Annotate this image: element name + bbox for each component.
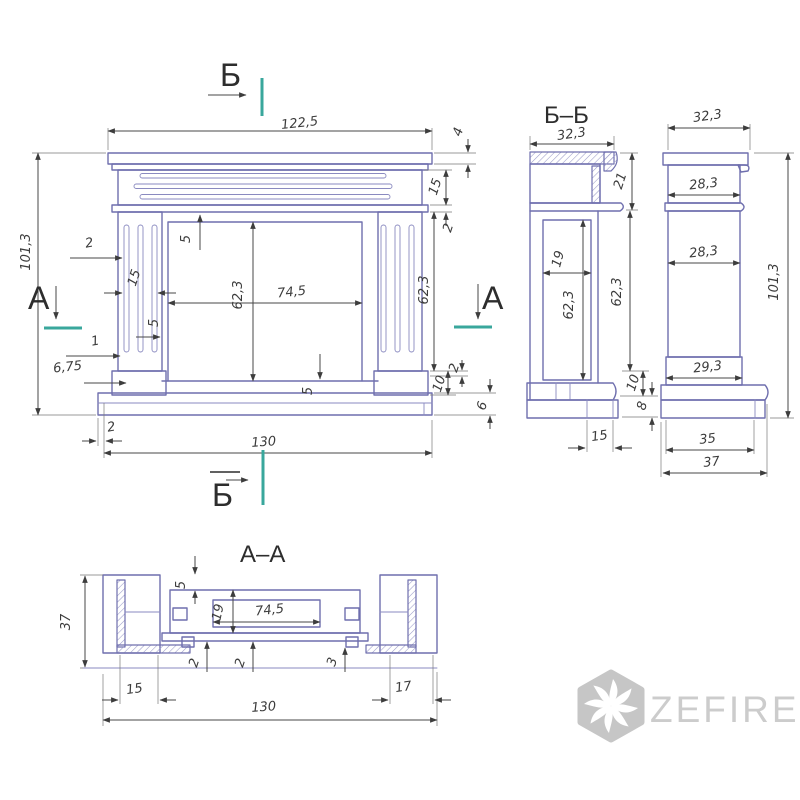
mantel-shelf xyxy=(108,153,432,164)
dim-front-opening-width: 74,5 xyxy=(276,284,306,302)
dim-aa-wall-mid: 2 xyxy=(232,657,249,670)
dim-front-band-height: 2 xyxy=(440,222,457,235)
flute xyxy=(124,225,129,352)
architrave-band xyxy=(112,205,428,212)
dim-side-depth-top: 32,3 xyxy=(692,107,723,126)
dim-front-width-top: 122,5 xyxy=(280,114,319,133)
dim-side-col-bottom-width: 29,3 xyxy=(692,359,722,377)
base-slab xyxy=(98,393,432,415)
dim-aa-opening-width: 74,5 xyxy=(254,602,284,620)
section-aa-title: А–А xyxy=(240,541,285,568)
flute xyxy=(381,225,386,352)
dim-bb-depth-top: 32,3 xyxy=(556,125,587,144)
dim-front-opening-height: 62,3 xyxy=(231,281,246,310)
front-geometry xyxy=(98,153,432,415)
section-bb-view: Б–Б 32,3 21 1 xyxy=(527,102,658,452)
dim-front-pilaster-height: 62,3 xyxy=(417,276,432,305)
front-view: 122,5 4 15 2 62,3 101,3 2 15 5 5 62,3 74… xyxy=(19,57,504,513)
blueprint-page: 122,5 4 15 2 62,3 101,3 2 15 5 5 62,3 74… xyxy=(0,0,800,800)
dim-aa-depth: 37 xyxy=(59,613,74,630)
dim-bb-cavity-height: 62,3 xyxy=(562,291,577,320)
dim-front-flute-one: 1 xyxy=(90,333,101,349)
cut-label-a-right: А xyxy=(482,280,504,316)
firebox-opening xyxy=(168,222,362,381)
cut-label-b-top: Б xyxy=(220,57,241,93)
side-dimensions: 32,3 28,3 28,3 29,3 101,3 35 37 xyxy=(661,107,794,477)
dim-front-frieze-height: 15 xyxy=(426,177,445,197)
brand-wordmark: ZEFIRE xyxy=(650,689,800,730)
dim-front-total-height: 101,3 xyxy=(19,233,34,270)
dim-side-base-width: 35 xyxy=(699,431,717,448)
dim-front-flute-group: 15 xyxy=(125,268,144,288)
frieze-groove xyxy=(140,195,390,200)
dim-side-col-top-width: 28,3 xyxy=(688,176,718,194)
column-side xyxy=(668,211,740,357)
frieze xyxy=(118,170,422,205)
dim-front-gap-top: 5 xyxy=(179,235,194,243)
dim-aa-wall-right: 3 xyxy=(324,656,341,669)
section-aa-view: А–А xyxy=(59,541,451,726)
dim-side-col-width: 28,3 xyxy=(688,244,718,262)
peg xyxy=(345,608,359,620)
flute xyxy=(409,225,414,352)
right-plinth xyxy=(374,371,428,395)
dim-aa-foot-left: 15 xyxy=(125,681,143,698)
left-pilaster xyxy=(118,212,162,371)
flute xyxy=(152,225,157,352)
dim-side-base-total: 37 xyxy=(703,454,722,471)
dim-front-gap-side: 5 xyxy=(147,319,162,327)
dim-front-plinth-height: 10 xyxy=(430,374,449,394)
fireplace-drawing: 122,5 4 15 2 62,3 101,3 2 15 5 5 62,3 74… xyxy=(0,0,800,800)
dim-bb-base-height: 8 xyxy=(634,400,651,413)
dim-front-flute-width: 2 xyxy=(84,235,95,251)
watermark: ZEFIRE xyxy=(581,673,800,739)
dim-aa-panel-depth: 19 xyxy=(210,603,228,622)
left-column-plan xyxy=(103,575,160,653)
dim-front-flute-offset: 6,75 xyxy=(52,359,82,377)
dim-aa-wall-left: 2 xyxy=(186,657,203,670)
dim-front-base-height: 6 xyxy=(474,400,491,413)
dim-aa-front-gap: 5 xyxy=(174,581,189,589)
dim-bb-foot-width: 15 xyxy=(590,428,608,445)
dim-bb-cavity-width: 19 xyxy=(549,249,568,269)
dim-bb-top-height: 21 xyxy=(611,171,630,191)
side-view: 32,3 28,3 28,3 29,3 101,3 35 37 xyxy=(661,107,794,477)
dim-front-step: 2 xyxy=(446,362,463,375)
dim-aa-total-width: 130 xyxy=(251,699,277,716)
dim-bb-body-height: 62,3 xyxy=(610,278,625,307)
dim-front-total-width: 130 xyxy=(251,434,277,451)
cut-label-b-bottom: Б xyxy=(212,477,233,513)
dim-aa-foot-right: 17 xyxy=(394,679,413,696)
dim-bb-plinth-height: 10 xyxy=(624,373,643,393)
peg xyxy=(173,608,187,620)
dim-front-hearth: 5 xyxy=(301,387,316,395)
base-side xyxy=(661,400,765,418)
dim-front-shelf-height: 4 xyxy=(450,126,467,139)
frieze-groove xyxy=(140,174,386,179)
shelf-section xyxy=(530,152,614,164)
section-bb-geometry xyxy=(527,152,623,418)
flute xyxy=(395,225,400,352)
frieze-groove xyxy=(134,184,392,189)
dim-front-base-offset: 2 xyxy=(106,419,117,435)
cut-label-a-left: А xyxy=(28,280,50,316)
shelf-side xyxy=(663,153,748,165)
dim-side-height: 101,3 xyxy=(767,263,782,300)
